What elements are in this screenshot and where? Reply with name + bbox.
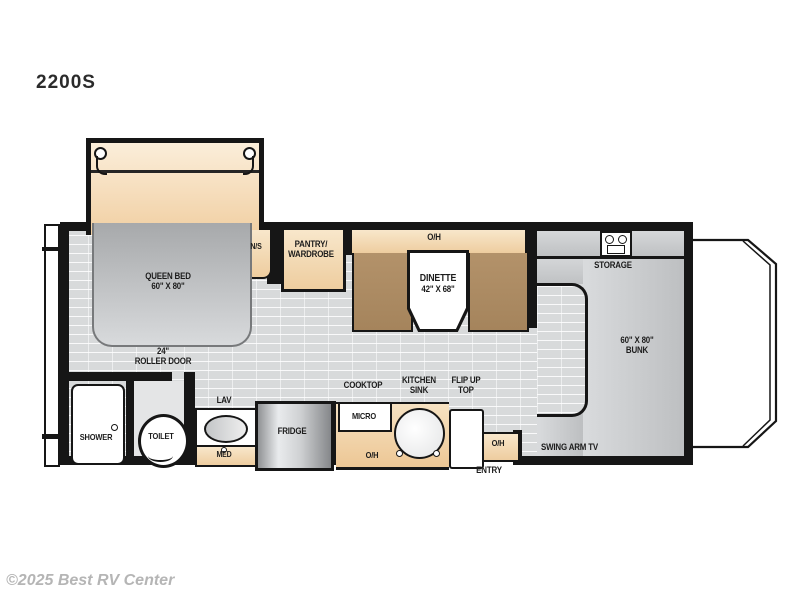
awning-bracket-top	[42, 247, 58, 251]
fridge-label: FRIDGE	[278, 427, 307, 437]
kitchen-sink-label: KITCHENSINK	[402, 376, 436, 395]
wall-left	[60, 222, 69, 465]
slideout-hook-left-icon	[96, 156, 107, 175]
lav-sink-cabinet	[195, 408, 257, 449]
med-label: MED	[216, 451, 231, 460]
watermark: ©2025 Best RV Center	[6, 572, 174, 590]
nightstand-label: N/S	[250, 243, 261, 252]
wall-bathroom-top	[60, 372, 172, 381]
bunk-bed	[583, 256, 685, 457]
queen-slideout	[86, 138, 264, 235]
lav-label: LAV	[217, 396, 232, 406]
wall-shower-toilet-divider	[126, 380, 134, 465]
bunk-walkway-notch	[537, 283, 588, 417]
wall-bottom-right	[515, 456, 693, 465]
lav-sink-bowl	[204, 415, 248, 443]
dinette-bench-right	[468, 253, 529, 332]
entry-overhead-label: O/H	[492, 439, 505, 448]
rv-floorplan: 2200S ©2025 Best RV Center QUEEN BED60" …	[0, 0, 800, 600]
toilet-seat-line	[148, 450, 173, 462]
dinette-bench-left	[352, 253, 413, 332]
page-title: 2200S	[36, 72, 96, 94]
rear-cap-outline	[691, 237, 781, 451]
wall-right	[684, 222, 693, 465]
roller-door-label: 24"ROLLER DOOR	[135, 347, 192, 366]
shower	[71, 384, 125, 465]
bunk-label: 60" X 80"BUNK	[620, 336, 653, 355]
faucet-knob-right-icon	[433, 450, 440, 457]
kitchen-overhead-label: O/H	[366, 451, 379, 460]
dinette-label: DINETTE42" X 68"	[420, 274, 456, 295]
awning-rail	[44, 224, 60, 467]
flip-up-top-label: FLIP UPTOP	[452, 376, 481, 395]
dinette-overhead-label: O/H	[427, 233, 441, 243]
cooktop-label: COOKTOP	[344, 381, 383, 391]
entry-label: ENTRY	[476, 466, 502, 476]
swing-arm-tv-label: SWING ARM TV	[541, 443, 598, 453]
burner-tray-icon	[607, 245, 625, 254]
awning-bracket-bottom	[42, 434, 58, 439]
queen-bed-label: QUEEN BED60" X 80"	[145, 272, 191, 291]
faucet-knob-left-icon	[396, 450, 403, 457]
storage-label: STORAGE	[594, 261, 632, 271]
headboard-line	[91, 170, 259, 173]
toilet-label: TOILET	[148, 432, 173, 441]
micro-label: MICRO	[352, 412, 376, 421]
flip-up-counter	[449, 409, 484, 469]
pantry-label: PANTRY/WARDROBE	[288, 240, 334, 259]
outdoor-cooktop-icon	[600, 231, 632, 257]
shower-label: SHOWER	[80, 433, 113, 442]
burner-left-icon	[605, 235, 614, 244]
burner-right-icon	[618, 235, 627, 244]
bunk-step-top	[537, 256, 587, 284]
shower-door-handle-icon	[111, 424, 118, 431]
